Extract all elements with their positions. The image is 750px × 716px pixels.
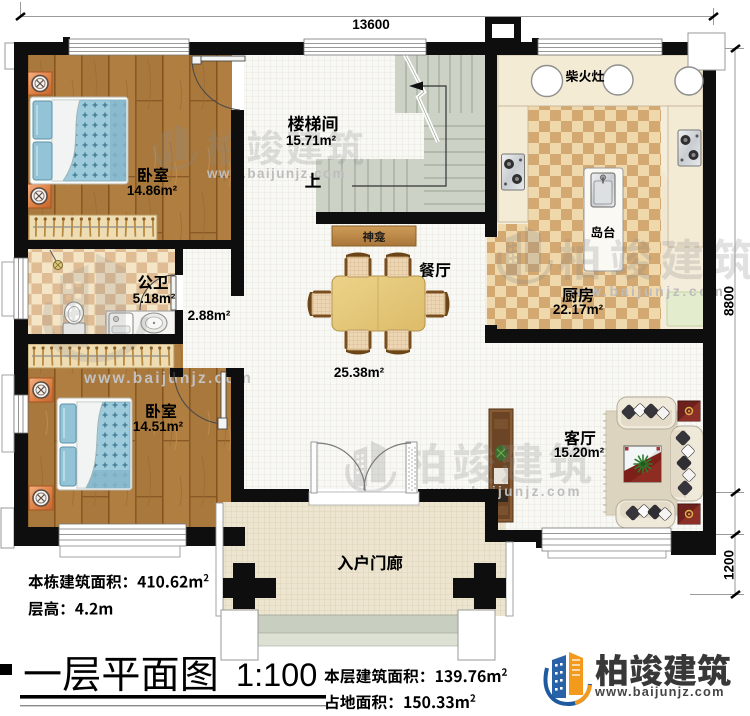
svg-text:13600: 13600 [352,17,390,32]
svg-text:www.baijunjz.com: www.baijunjz.com [594,684,725,699]
svg-text:25.38m²: 25.38m² [334,365,385,380]
svg-text:15.20m²: 15.20m² [554,445,605,460]
svg-text:2.88m²: 2.88m² [188,308,231,323]
svg-text:15.71m²: 15.71m² [286,133,337,148]
svg-text:14.86m²: 14.86m² [127,183,178,198]
svg-text:1200: 1200 [722,550,737,580]
svg-text:5.18m²: 5.18m² [133,291,176,306]
svg-text:14.51m²: 14.51m² [133,419,184,434]
svg-text:1:100: 1:100 [236,657,317,693]
svg-text:22.17m²: 22.17m² [553,302,604,317]
svg-text:www.baijunjz.com: www.baijunjz.com [206,166,346,181]
